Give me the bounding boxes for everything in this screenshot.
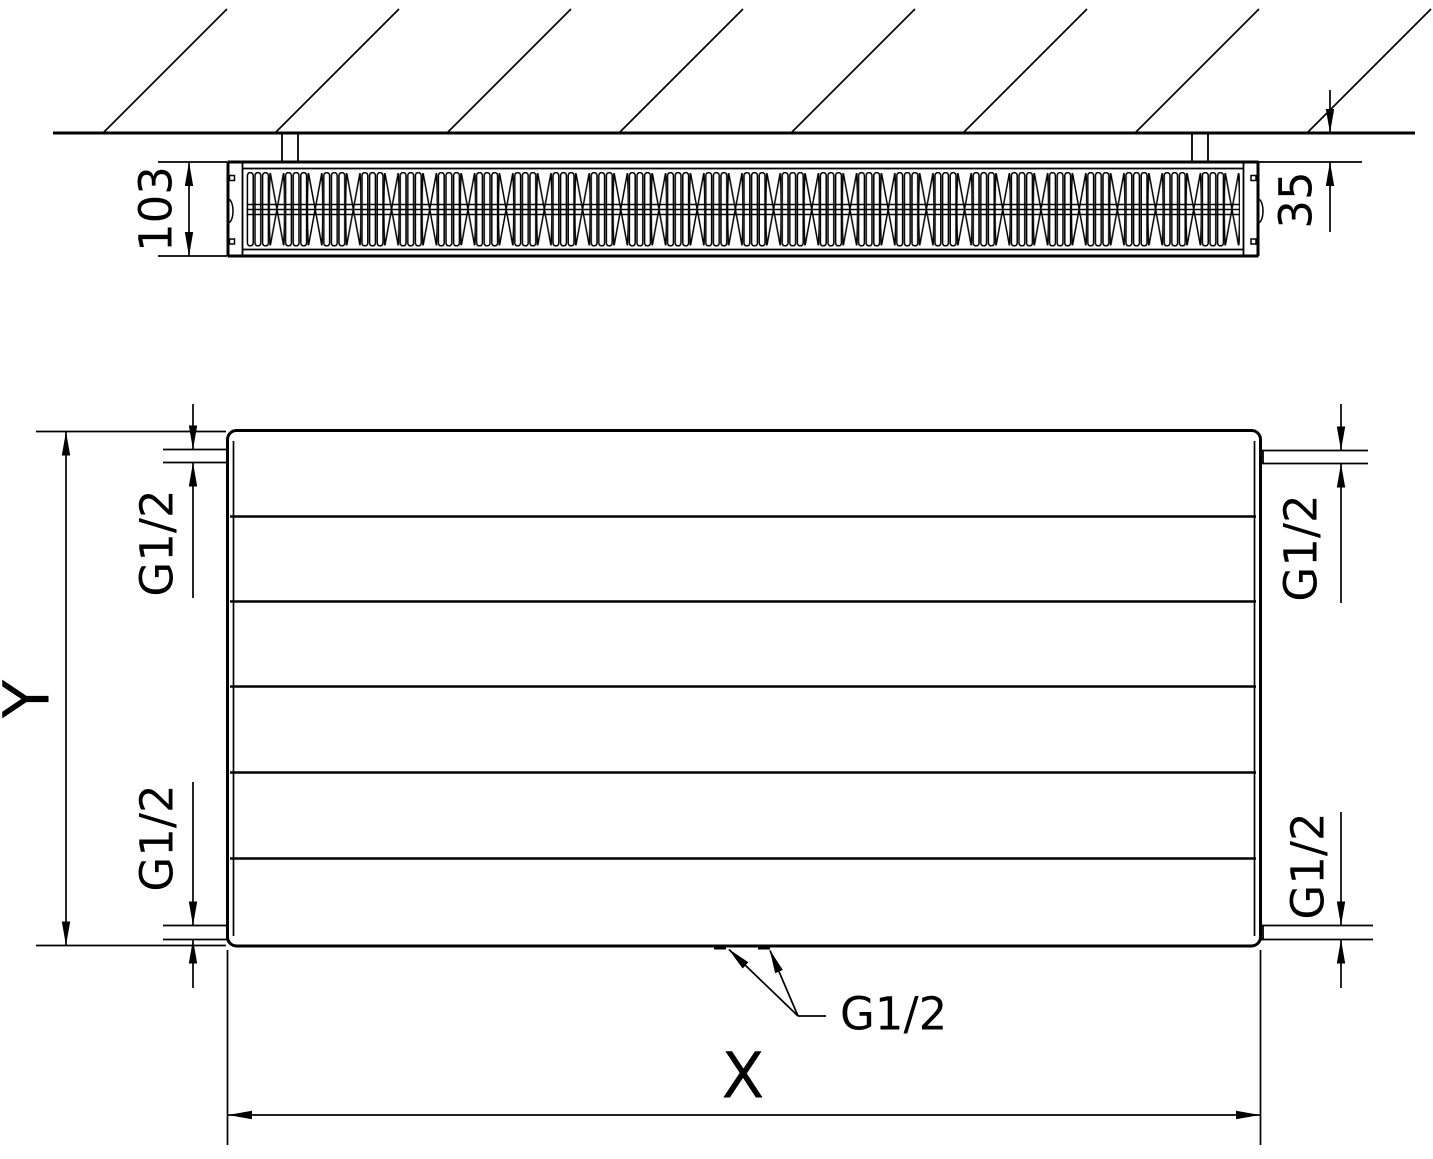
dim-thread-bottom-left: G1/2 xyxy=(131,782,198,988)
thread-label-top-left: G1/2 xyxy=(131,489,184,596)
center-connection-right xyxy=(758,946,770,950)
thread-label-bottom-right: G1/2 xyxy=(1282,812,1335,919)
dim-height-y: Y xyxy=(0,432,226,946)
front-view: Y X G1/2 G1/2 G1/2 xyxy=(0,404,1373,1145)
drawing-canvas: 103 35 Y xyxy=(0,0,1433,1159)
radiator-cross-section xyxy=(228,162,1264,256)
cap-pin-top-left xyxy=(230,176,235,181)
wall-hatching xyxy=(103,9,1431,133)
pipe-stub-top-left xyxy=(163,450,228,463)
thread-label-bottom-left: G1/2 xyxy=(131,784,184,891)
cap-pin-bottom-left xyxy=(230,239,235,244)
pipe-stub-bottom-right xyxy=(1261,926,1374,940)
panel-groove-lines xyxy=(230,517,1256,859)
cap-pin-bottom-right xyxy=(1251,239,1256,244)
top-view-cross-section: 103 35 xyxy=(53,9,1431,256)
dim-thread-bottom-right: G1/2 xyxy=(1282,812,1346,988)
pipe-stub-top-right xyxy=(1261,451,1369,464)
dim-height-label: Y xyxy=(0,679,64,719)
leader-thread-bottom-center: G1/2 xyxy=(729,950,947,1041)
dim-thread-top-right: G1/2 xyxy=(1275,404,1346,603)
mounting-bracket-right xyxy=(1192,133,1208,162)
dim-width-label: X xyxy=(721,1040,764,1113)
pipe-stub-bottom-left xyxy=(163,926,228,940)
technical-drawing: 103 35 Y xyxy=(0,0,1433,1159)
center-connection-left xyxy=(714,946,726,950)
radiator-front-panel xyxy=(228,431,1261,947)
dim-width-x: X xyxy=(228,950,1261,1145)
thread-label-top-right: G1/2 xyxy=(1275,494,1328,601)
dim-depth: 103 xyxy=(130,162,228,256)
mounting-bracket-left xyxy=(282,133,298,162)
thread-label-bottom-center: G1/2 xyxy=(840,988,947,1041)
cap-pin-top-right xyxy=(1251,176,1256,181)
dim-wall-gap: 35 xyxy=(1259,90,1363,232)
dim-depth-label: 103 xyxy=(130,166,183,252)
dim-thread-top-left: G1/2 xyxy=(131,404,198,598)
dim-wall-gap-label: 35 xyxy=(1270,171,1323,228)
